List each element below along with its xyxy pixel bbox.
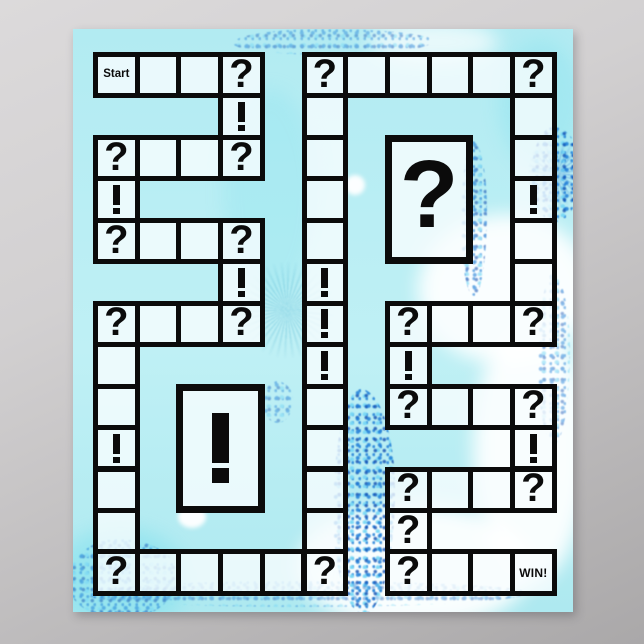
question-cell: ? <box>93 549 140 595</box>
cell-label: WIN! <box>519 567 547 579</box>
exclaim-cell <box>218 93 265 139</box>
exclaim-mark <box>113 434 120 463</box>
blank-cell <box>302 218 349 264</box>
blank-cell <box>468 384 515 430</box>
exclaim-mark <box>321 268 328 297</box>
exclaim-mark <box>113 185 120 214</box>
blank-cell <box>468 549 515 595</box>
blank-cell <box>468 301 515 347</box>
question-cell: ? <box>510 384 557 430</box>
question-cell: ? <box>510 52 557 98</box>
blank-cell <box>93 467 140 513</box>
exclaim-mark <box>321 309 328 338</box>
question-cell: ? <box>302 549 349 595</box>
exclaim-cell <box>302 301 349 347</box>
cell-label: ? <box>229 302 253 345</box>
exclaim-dot <box>405 374 412 380</box>
blank-cell <box>93 384 140 430</box>
blank-cell <box>135 301 182 347</box>
question-cell: ? <box>93 218 140 264</box>
win-cell: WIN! <box>510 549 557 595</box>
exclaim-dot <box>238 125 245 131</box>
cell-label: ? <box>229 54 253 97</box>
blank-cell <box>135 549 182 595</box>
exclaim-dot <box>113 457 120 463</box>
question-cell: ? <box>385 549 432 595</box>
exclaim-bar <box>238 268 245 288</box>
question-cell: ? <box>218 52 265 98</box>
big-exclaim-box <box>176 384 264 513</box>
game-board: Start???????????????????WIN!? <box>73 29 573 612</box>
exclaim-bar <box>405 351 412 371</box>
cell-label: ? <box>313 54 337 97</box>
blank-cell <box>260 549 307 595</box>
exclaim-cell <box>302 342 349 388</box>
blank-cell <box>302 135 349 181</box>
exclaim-dot <box>321 291 328 297</box>
blank-cell <box>468 52 515 98</box>
blank-cell <box>343 52 390 98</box>
exclaim-bar <box>530 434 537 454</box>
blank-cell <box>176 301 223 347</box>
question-cell: ? <box>510 467 557 513</box>
exclaim-bar <box>113 185 120 205</box>
blank-cell <box>176 135 223 181</box>
blank-cell <box>135 218 182 264</box>
question-cell: ? <box>93 301 140 347</box>
cell-label: ? <box>521 468 545 511</box>
exclaim-bar <box>321 351 328 371</box>
exclaim-bar <box>238 102 245 122</box>
exclaim-cell <box>93 176 140 222</box>
poster: Start???????????????????WIN!? <box>73 29 573 612</box>
exclaim-dot <box>113 208 120 214</box>
question-cell: ? <box>302 52 349 98</box>
exclaim-bar <box>321 309 328 329</box>
cell-label: ? <box>521 302 545 345</box>
cell-label: ? <box>396 510 420 553</box>
cell-label: ? <box>229 137 253 180</box>
question-cell: ? <box>218 301 265 347</box>
exclaim-dot <box>530 457 537 463</box>
exclaim-cell <box>218 259 265 305</box>
exclaim-dot <box>238 291 245 297</box>
question-cell: ? <box>93 135 140 181</box>
cell-label: ? <box>104 137 128 180</box>
cell-label: ? <box>104 551 128 594</box>
blank-cell <box>427 549 474 595</box>
cell-label: ? <box>396 302 420 345</box>
blank-cell <box>510 259 557 305</box>
blank-cell <box>302 508 349 554</box>
big-question-box: ? <box>385 135 473 264</box>
blank-cell <box>427 52 474 98</box>
question-cell: ? <box>510 301 557 347</box>
exclaim-mark <box>530 434 537 463</box>
exclaim-cell <box>93 425 140 471</box>
question-cell: ? <box>385 384 432 430</box>
backdrop: Start???????????????????WIN!? <box>0 0 644 644</box>
exclaim-mark <box>405 351 412 380</box>
question-cell: ? <box>385 301 432 347</box>
blank-cell <box>510 93 557 139</box>
cell-label: ? <box>521 54 545 97</box>
blank-cell <box>510 135 557 181</box>
blank-cell <box>302 384 349 430</box>
exclaim-cell <box>510 176 557 222</box>
blank-cell <box>302 467 349 513</box>
blank-cell <box>427 384 474 430</box>
question-cell: ? <box>218 218 265 264</box>
blank-cell <box>427 301 474 347</box>
blank-cell <box>176 52 223 98</box>
blank-cell <box>93 508 140 554</box>
exclaim-cell <box>510 425 557 471</box>
exclaim-dot <box>321 374 328 380</box>
exclaim-mark <box>238 102 245 131</box>
exclaim-bar <box>212 413 229 463</box>
exclaim-bar <box>321 268 328 288</box>
cell-label: ? <box>396 385 420 428</box>
big-question-mark: ? <box>400 147 459 253</box>
start-cell: Start <box>93 52 140 98</box>
exclaim-mark <box>321 351 328 380</box>
cell-label: ? <box>521 385 545 428</box>
blank-cell <box>302 176 349 222</box>
blank-cell <box>302 93 349 139</box>
cell-label: ? <box>104 302 128 345</box>
blank-cell <box>385 52 432 98</box>
exclaim-mark <box>212 413 229 483</box>
exclaim-cell <box>385 342 432 388</box>
question-cell: ? <box>385 467 432 513</box>
cell-label: ? <box>104 220 128 263</box>
exclaim-dot <box>530 208 537 214</box>
blank-cell <box>93 342 140 388</box>
cell-label: ? <box>396 551 420 594</box>
blank-cell <box>176 218 223 264</box>
question-cell: ? <box>218 135 265 181</box>
exclaim-bar <box>530 185 537 205</box>
exclaim-cell <box>302 259 349 305</box>
blank-cell <box>468 467 515 513</box>
exclaim-bar <box>113 434 120 454</box>
blank-cell <box>135 52 182 98</box>
question-cell: ? <box>385 508 432 554</box>
blank-cell <box>302 425 349 471</box>
blank-cell <box>510 218 557 264</box>
exclaim-dot <box>321 332 328 338</box>
blank-cell <box>218 549 265 595</box>
exclaim-dot <box>212 468 229 483</box>
cell-label: ? <box>396 468 420 511</box>
cell-label: ? <box>313 551 337 594</box>
blank-cell <box>135 135 182 181</box>
cell-label: ? <box>229 220 253 263</box>
blank-cell <box>176 549 223 595</box>
exclaim-mark <box>530 185 537 214</box>
blank-cell <box>427 467 474 513</box>
exclaim-mark <box>238 268 245 297</box>
cell-label: Start <box>103 69 129 81</box>
